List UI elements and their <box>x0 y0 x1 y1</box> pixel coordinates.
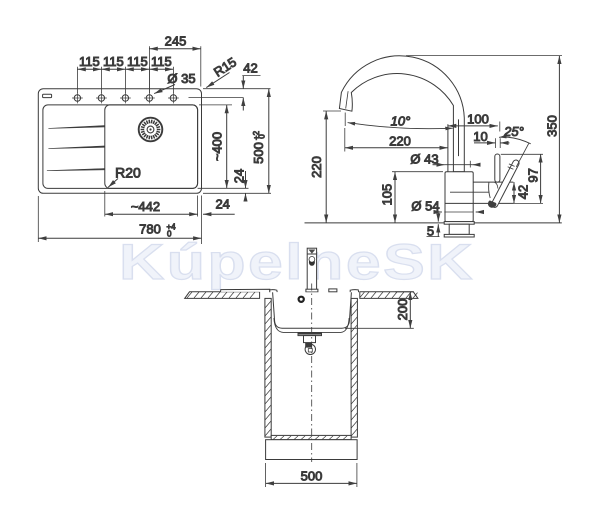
svg-text:115: 115 <box>151 54 172 69</box>
svg-text:Ø 43: Ø 43 <box>410 152 438 167</box>
svg-text:Ø 54: Ø 54 <box>411 199 439 214</box>
svg-text:115: 115 <box>103 54 124 69</box>
svg-text:500: 500 <box>251 142 266 164</box>
svg-text:10: 10 <box>473 129 487 144</box>
svg-text:500: 500 <box>301 469 323 484</box>
svg-text:~400: ~400 <box>210 132 225 161</box>
svg-text:220: 220 <box>389 134 411 149</box>
svg-text:220: 220 <box>309 156 324 178</box>
svg-text:42: 42 <box>243 61 257 76</box>
svg-text:25°: 25° <box>503 124 524 139</box>
svg-text:100: 100 <box>467 111 489 126</box>
svg-text:R20: R20 <box>115 165 141 181</box>
svg-text:115: 115 <box>79 54 100 69</box>
svg-text:24: 24 <box>215 197 229 212</box>
svg-text:245: 245 <box>165 33 187 48</box>
svg-text:Ø 35: Ø 35 <box>167 71 195 86</box>
svg-text:24: 24 <box>232 169 247 183</box>
svg-text:0: 0 <box>257 134 266 139</box>
svg-text:97: 97 <box>525 168 540 182</box>
svg-text:350: 350 <box>545 115 560 137</box>
svg-text:200: 200 <box>395 299 410 321</box>
svg-text:10°: 10° <box>391 113 411 128</box>
svg-text:115: 115 <box>127 54 148 69</box>
svg-text:~442: ~442 <box>131 199 160 214</box>
svg-text:42: 42 <box>516 185 531 199</box>
svg-text:KúpelneSK: KúpelneSK <box>119 234 475 290</box>
svg-text:105: 105 <box>379 184 394 206</box>
